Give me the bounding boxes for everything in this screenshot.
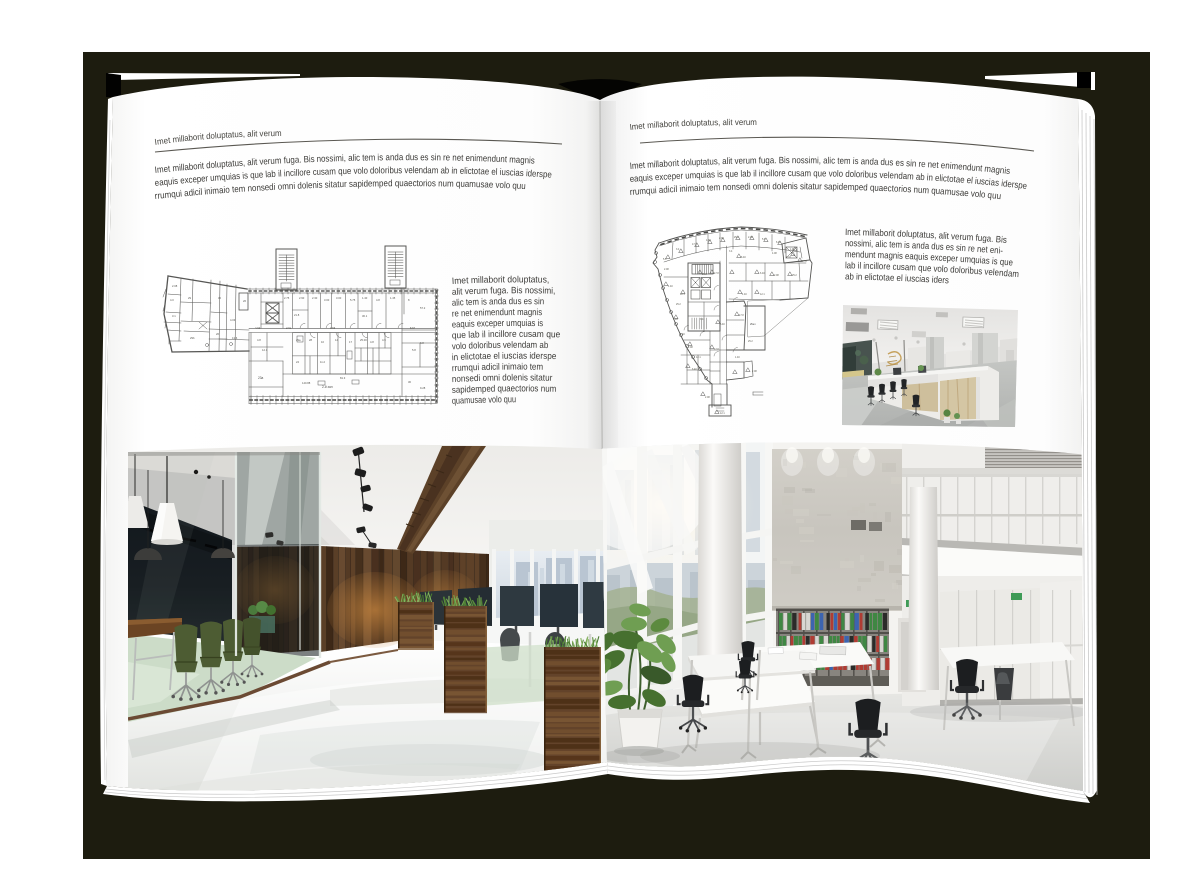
svg-text:4.0: 4.0 — [170, 298, 174, 302]
svg-text:29a: 29a — [296, 338, 301, 342]
svg-text:2.30: 2.30 — [312, 296, 318, 300]
svg-text:que lab il incillore cusam que: que lab il incillore cusam que — [452, 329, 561, 341]
svg-text:Имх: Имх — [750, 322, 756, 326]
svg-text:17.8: 17.8 — [786, 256, 791, 259]
svg-text:in elictotae el iuscias idersp: in elictotae el iuscias iderspe — [452, 351, 557, 363]
svg-text:Imet millaborit doluptatus,: Imet millaborit doluptatus, — [452, 274, 550, 286]
svg-text:1.40: 1.40 — [680, 333, 685, 336]
svg-text:4.9: 4.9 — [382, 338, 386, 342]
svg-text:4.08: 4.08 — [772, 252, 777, 255]
svg-text:28: 28 — [309, 338, 312, 342]
svg-text:23а: 23а — [258, 376, 264, 380]
svg-text:6.40: 6.40 — [692, 368, 697, 371]
svg-text:nonsedi omni dolenis sitatur: nonsedi omni dolenis sitatur — [452, 372, 553, 384]
svg-text:re net enimendunt magnis: re net enimendunt magnis — [452, 307, 543, 319]
svg-text:1.45: 1.45 — [390, 296, 396, 300]
svg-text:140.88: 140.88 — [302, 381, 311, 385]
svg-text:17: 17 — [349, 340, 352, 344]
svg-text:6.40: 6.40 — [741, 256, 746, 259]
svg-text:14: 14 — [335, 338, 338, 342]
svg-text:eaquis exceper umquias is: eaquis exceper umquias is — [452, 318, 544, 330]
svg-text:57.2: 57.2 — [420, 306, 426, 310]
svg-text:3.1: 3.1 — [172, 314, 176, 318]
svg-text:32: 32 — [218, 296, 221, 300]
svg-text:24: 24 — [296, 360, 299, 364]
svg-text:6.40: 6.40 — [776, 241, 781, 244]
svg-text:4.03: 4.03 — [230, 318, 236, 322]
svg-text:2-й зал: 2-й зал — [322, 385, 333, 389]
svg-text:2.08: 2.08 — [719, 237, 724, 240]
svg-text:81.3: 81.3 — [340, 376, 346, 380]
svg-text:5.54: 5.54 — [410, 326, 416, 330]
svg-text:4.8: 4.8 — [370, 340, 374, 344]
svg-text:17.8: 17.8 — [692, 243, 697, 246]
svg-text:3.56: 3.56 — [330, 326, 336, 330]
svg-text:25.2: 25.2 — [748, 340, 753, 343]
svg-text:quamusae volo quu: quamusae volo quu — [452, 394, 516, 406]
svg-text:2.08: 2.08 — [752, 370, 757, 373]
svg-text:30: 30 — [408, 380, 411, 384]
svg-text:2.08: 2.08 — [774, 274, 779, 277]
svg-text:3.00: 3.00 — [324, 298, 330, 302]
svg-text:21.8: 21.8 — [294, 313, 300, 317]
svg-text:1.40: 1.40 — [362, 296, 368, 300]
svg-text:sapidemped quaectorios num: sapidemped quaectorios num — [452, 383, 557, 395]
svg-text:2.90: 2.90 — [299, 296, 305, 300]
svg-text:volo doloribus velendam ab: volo doloribus velendam ab — [452, 340, 549, 352]
svg-text:1.40: 1.40 — [668, 285, 673, 288]
svg-text:29b: 29b — [190, 336, 195, 340]
svg-text:4.63: 4.63 — [255, 326, 261, 330]
svg-text:17.8: 17.8 — [714, 272, 719, 275]
svg-text:17.8: 17.8 — [802, 260, 807, 263]
svg-text:26: 26 — [216, 332, 219, 336]
svg-text:2.08: 2.08 — [664, 268, 669, 271]
svg-text:25.00: 25.00 — [360, 338, 367, 342]
svg-text:25.2: 25.2 — [734, 236, 739, 239]
svg-text:6.40: 6.40 — [760, 272, 765, 275]
svg-text:2.08: 2.08 — [748, 236, 753, 239]
svg-text:25.2: 25.2 — [792, 274, 797, 277]
svg-text:1.40: 1.40 — [673, 318, 678, 321]
svg-text:17.8: 17.8 — [739, 314, 744, 317]
svg-text:12.1: 12.1 — [720, 412, 725, 415]
svg-text:25.2: 25.2 — [702, 273, 707, 276]
svg-text:6.40: 6.40 — [720, 323, 725, 326]
svg-text:rrumqui adicil inimaio tem: rrumqui adicil inimaio tem — [452, 362, 544, 374]
svg-text:10: 10 — [321, 340, 324, 344]
svg-text:6.8: 6.8 — [420, 341, 424, 345]
svg-text:25.2: 25.2 — [676, 303, 681, 306]
svg-text:29: 29 — [188, 296, 191, 300]
svg-text:2.9a: 2.9a — [286, 326, 292, 330]
svg-text:9.28: 9.28 — [420, 386, 426, 390]
svg-text:4.8: 4.8 — [376, 298, 380, 302]
svg-text:5.8: 5.8 — [412, 348, 416, 352]
svg-text:12.1: 12.1 — [262, 348, 268, 352]
svg-text:2.08: 2.08 — [688, 346, 693, 349]
svg-text:5.75: 5.75 — [350, 298, 356, 302]
svg-text:1.40: 1.40 — [790, 248, 795, 251]
svg-text:12.1: 12.1 — [680, 293, 685, 296]
svg-text:2.75: 2.75 — [284, 296, 290, 300]
svg-text:13.6: 13.6 — [232, 336, 238, 340]
svg-text:12.1: 12.1 — [696, 356, 701, 359]
svg-text:30.1: 30.1 — [362, 314, 368, 318]
svg-text:2.08: 2.08 — [705, 396, 710, 399]
svg-text:alic tem is anda dus es sin: alic tem is anda dus es sin — [452, 296, 545, 308]
svg-text:1.40: 1.40 — [735, 356, 740, 359]
svg-text:alit verum fuga. Bis nossimi,: alit verum fuga. Bis nossimi, — [452, 285, 556, 297]
svg-text:12.1: 12.1 — [760, 293, 765, 296]
svg-text:1.40: 1.40 — [706, 239, 711, 242]
svg-text:3.00: 3.00 — [336, 296, 342, 300]
svg-text:2.08: 2.08 — [172, 284, 178, 288]
svg-text:1.40: 1.40 — [742, 293, 747, 296]
svg-text:4.8: 4.8 — [257, 338, 261, 342]
svg-text:26: 26 — [243, 299, 246, 303]
svg-text:17.8: 17.8 — [714, 348, 719, 351]
svg-text:11.2: 11.2 — [320, 360, 326, 364]
